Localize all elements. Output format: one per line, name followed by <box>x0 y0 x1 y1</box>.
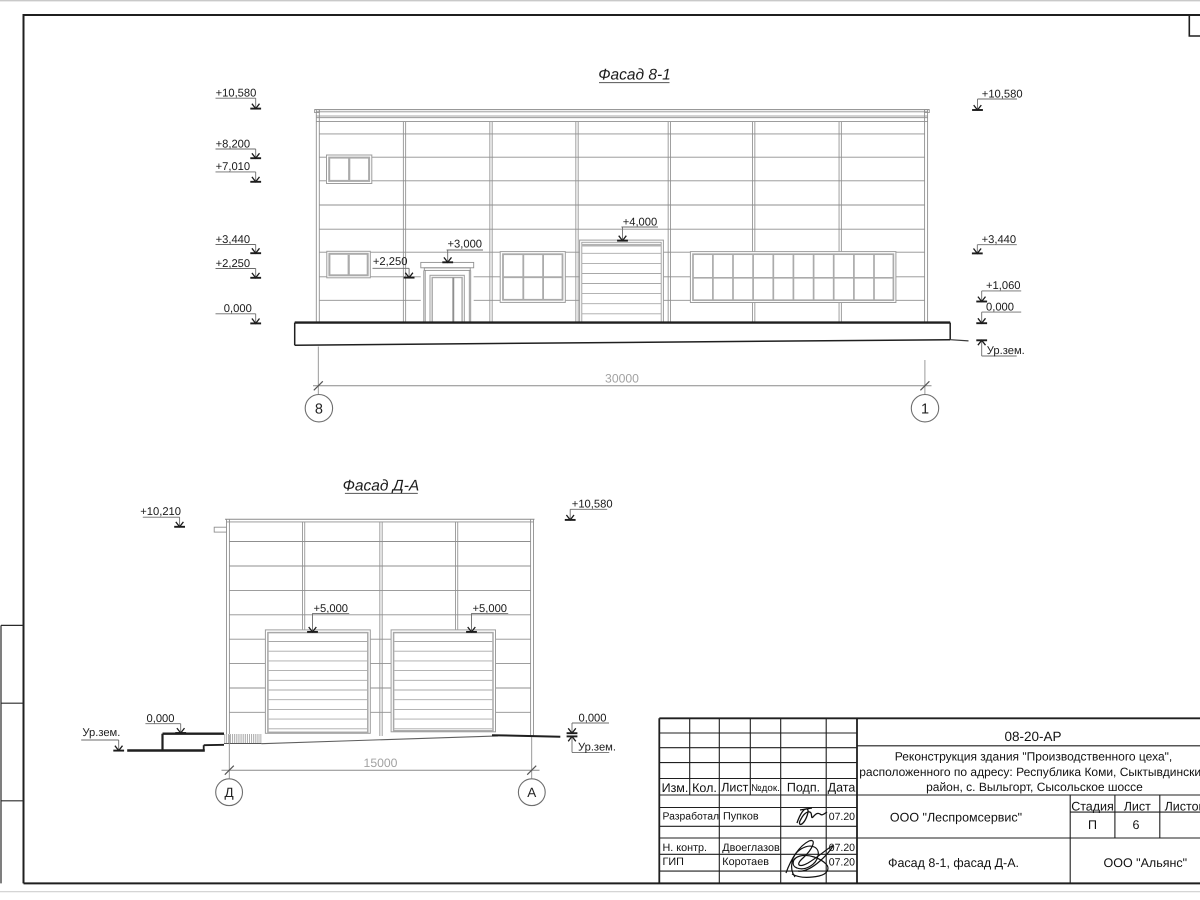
svg-text:Ур.зем.: Ур.зем. <box>578 741 616 753</box>
svg-text:+1,060: +1,060 <box>986 280 1021 292</box>
svg-text:+10,580: +10,580 <box>982 88 1023 100</box>
svg-text:Д: Д <box>225 785 234 800</box>
svg-text:+3,440: +3,440 <box>982 234 1017 246</box>
svg-text:Изм.: Изм. <box>662 781 689 795</box>
svg-text:+3,000: +3,000 <box>448 238 483 250</box>
svg-text:07.20: 07.20 <box>829 842 855 854</box>
svg-text:Ур.зем.: Ур.зем. <box>82 727 120 739</box>
svg-text:+2,250: +2,250 <box>373 256 408 268</box>
svg-text:+10,580: +10,580 <box>572 498 613 510</box>
svg-text:+7,010: +7,010 <box>216 161 251 173</box>
svg-text:Подп.: Подп. <box>787 781 820 795</box>
svg-text:+3,440: +3,440 <box>216 234 251 246</box>
svg-text:Н. контр.: Н. контр. <box>663 842 708 854</box>
svg-text:+2,250: +2,250 <box>216 258 251 270</box>
svg-text:+10,580: +10,580 <box>216 88 257 100</box>
svg-text:Коротаев: Коротаев <box>722 856 769 868</box>
svg-text:15000: 15000 <box>364 756 398 770</box>
svg-text:Фасад 8-1, фасад Д-А.: Фасад 8-1, фасад Д-А. <box>888 856 1019 870</box>
svg-text:Реконструкция здания "Производ: Реконструкция здания "Производственного … <box>895 749 1172 763</box>
svg-text:Пупков: Пупков <box>723 811 759 823</box>
svg-text:Фасад Д-А: Фасад Д-А <box>343 478 420 495</box>
svg-text:07.20: 07.20 <box>829 857 855 869</box>
svg-text:№док.: №док. <box>751 783 780 794</box>
svg-text:ООО "Альянс": ООО "Альянс" <box>1104 856 1188 870</box>
svg-text:ГИП: ГИП <box>663 856 684 868</box>
svg-text:Фасад 8-1: Фасад 8-1 <box>598 67 671 84</box>
svg-text:П: П <box>1088 818 1097 832</box>
svg-text:6: 6 <box>1133 818 1140 832</box>
svg-text:0,000: 0,000 <box>579 712 607 724</box>
svg-text:1: 1 <box>921 401 929 417</box>
svg-text:8: 8 <box>315 401 323 417</box>
svg-text:08-20-АР: 08-20-АР <box>1004 729 1061 744</box>
svg-text:расположенного по адресу: Респ: расположенного по адресу: Республика Ком… <box>859 765 1200 779</box>
svg-text:Двоеглазов: Двоеглазов <box>722 842 780 854</box>
svg-text:+8,200: +8,200 <box>216 138 251 150</box>
svg-text:Кол.: Кол. <box>692 781 717 795</box>
svg-text:А: А <box>527 785 536 800</box>
svg-text:07.20: 07.20 <box>829 811 855 823</box>
svg-text:0,000: 0,000 <box>986 301 1014 313</box>
svg-text:район, с. Выльгорт, Сысольское: район, с. Выльгорт, Сысольское шоссе <box>926 780 1143 794</box>
svg-text:+10,210: +10,210 <box>140 506 181 518</box>
svg-text:0,000: 0,000 <box>224 303 252 315</box>
svg-text:ООО "Леспромсервис": ООО "Леспромсервис" <box>890 811 1022 825</box>
svg-text:Ур.зем.: Ур.зем. <box>987 345 1025 357</box>
svg-text:Лист: Лист <box>1124 800 1151 814</box>
svg-text:0,000: 0,000 <box>147 713 175 725</box>
svg-text:Листов: Листов <box>1165 800 1200 814</box>
svg-text:Разработал: Разработал <box>663 812 720 823</box>
svg-text:Стадия: Стадия <box>1071 800 1114 814</box>
svg-text:Дата: Дата <box>828 781 856 795</box>
svg-text:30000: 30000 <box>605 372 639 386</box>
svg-text:Лист: Лист <box>721 781 748 795</box>
